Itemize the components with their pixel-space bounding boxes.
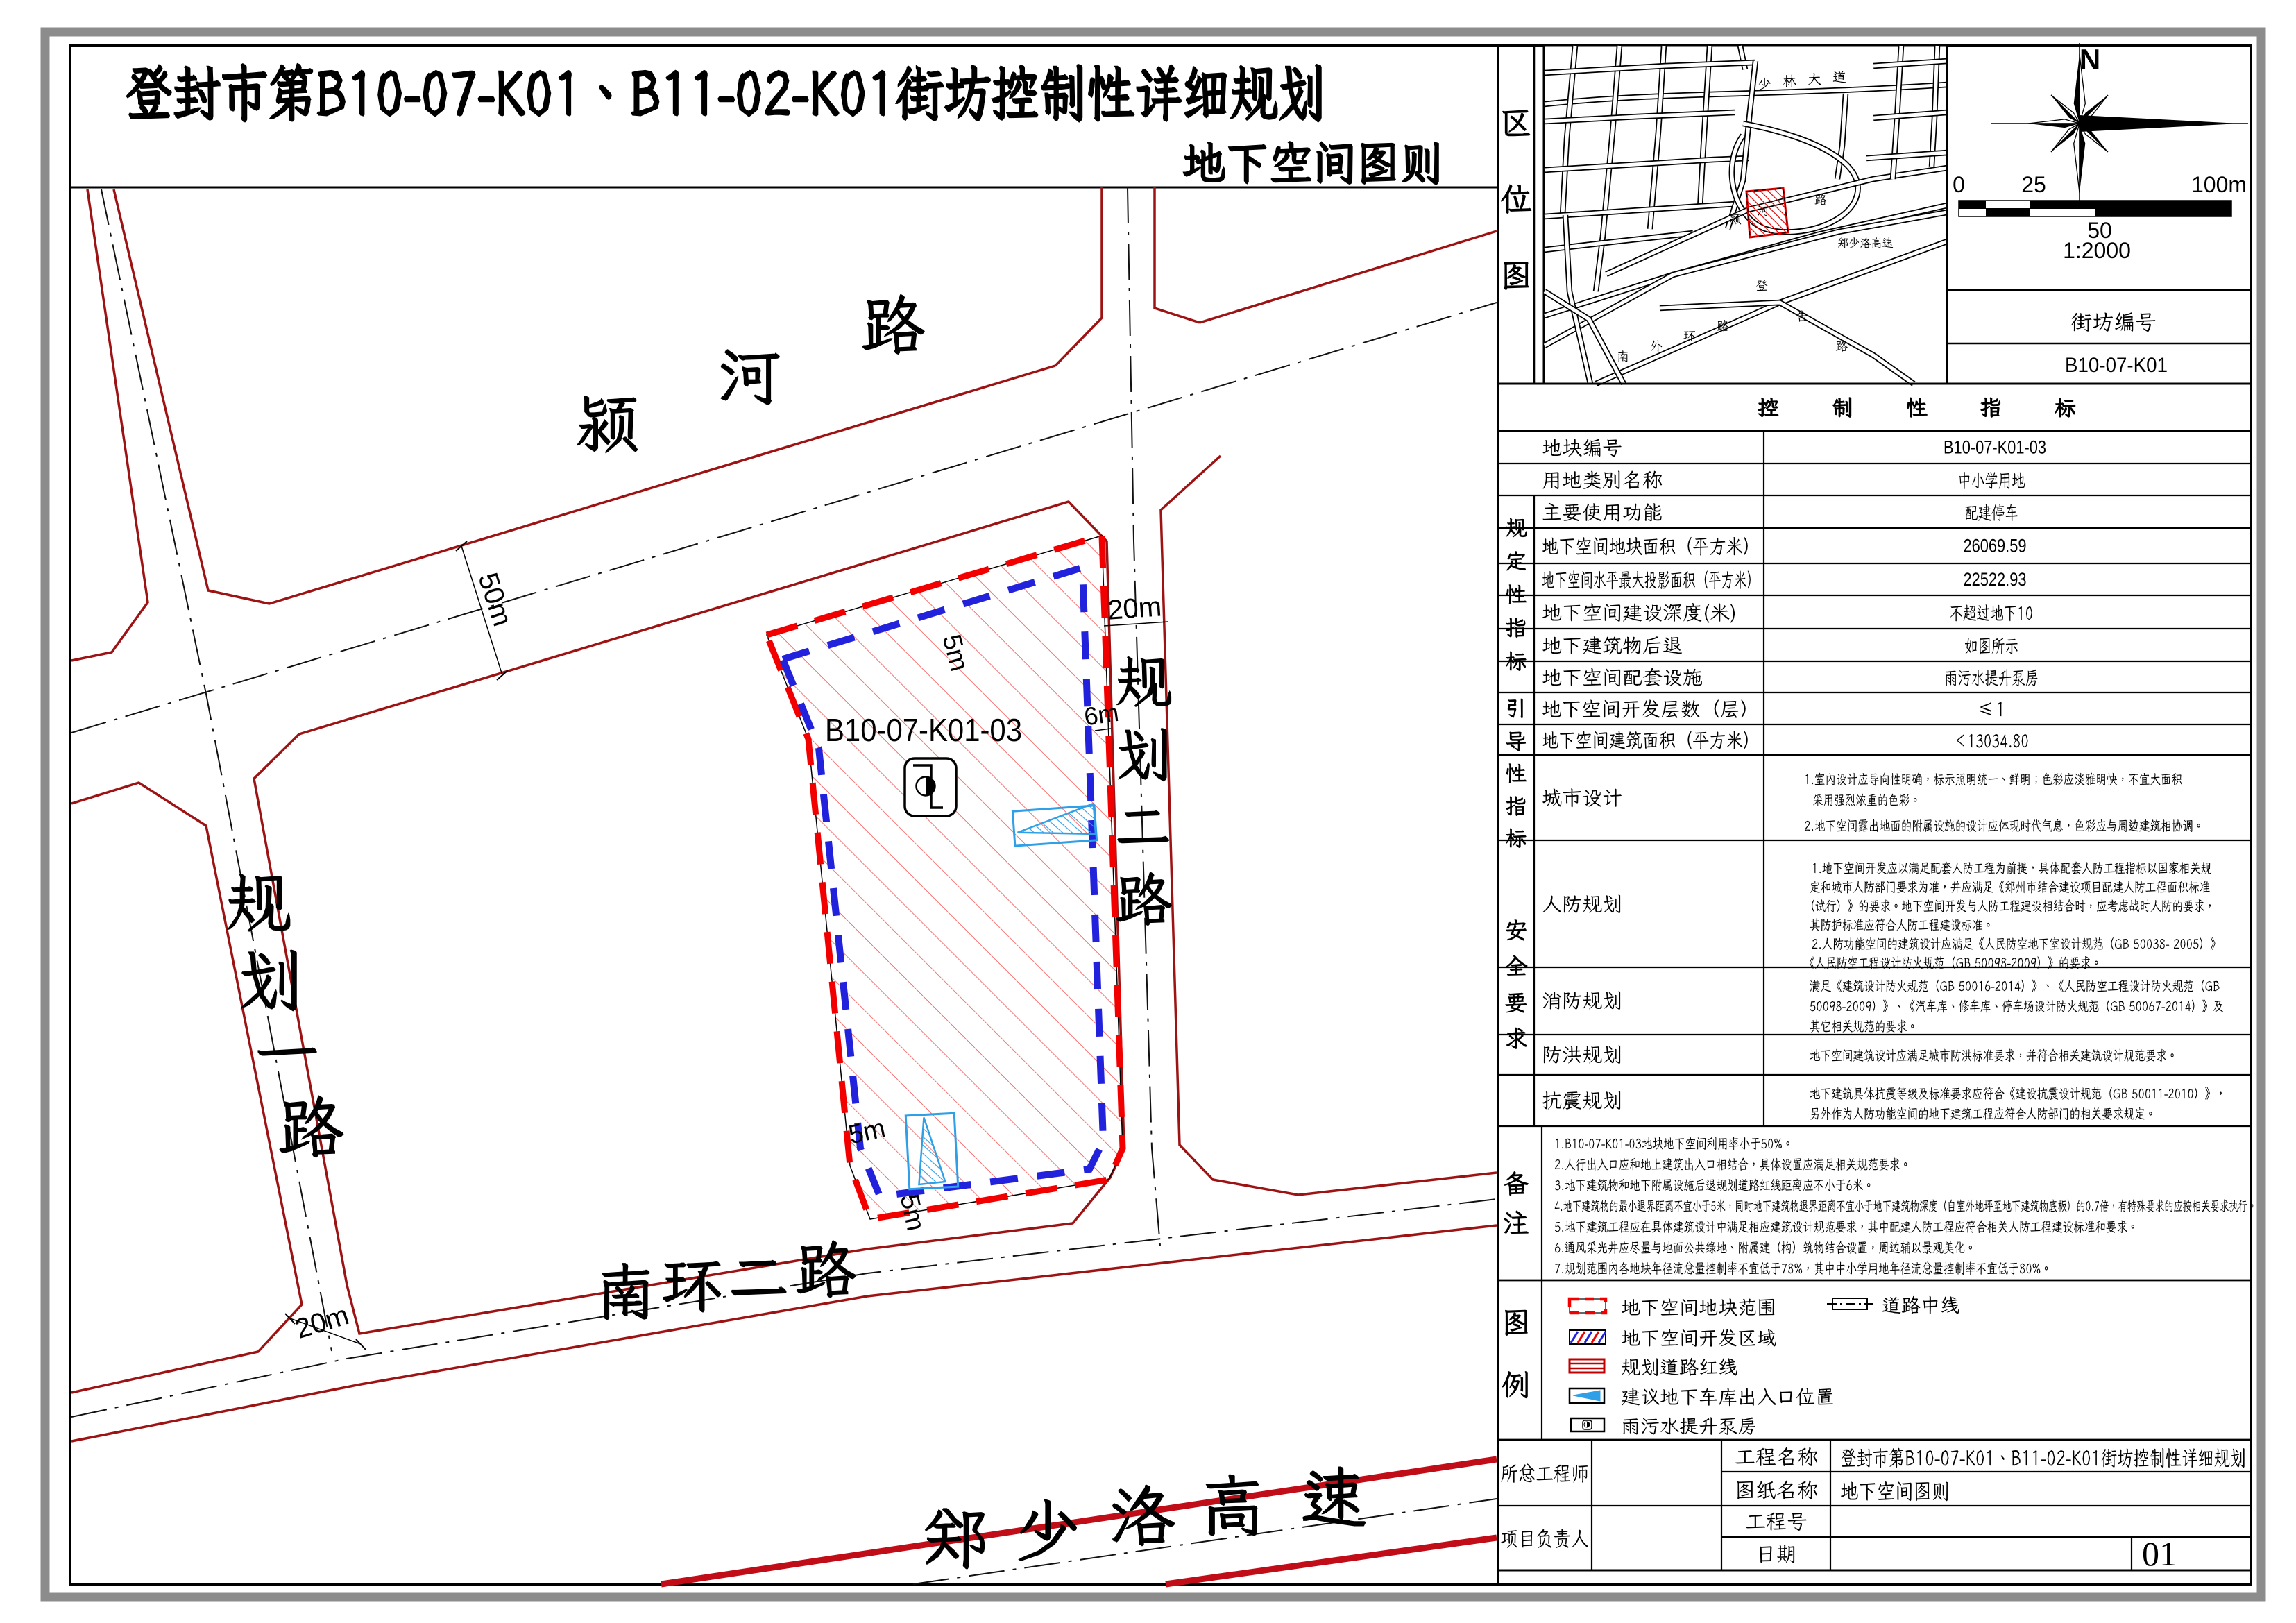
svg-text:22522.93: 22522.93	[1964, 569, 2027, 590]
svg-text:01: 01	[2142, 1534, 2177, 1573]
svg-text:B10-07-K01-03: B10-07-K01-03	[825, 712, 1022, 748]
svg-text:26069.59: 26069.59	[1964, 536, 2027, 556]
svg-text:0: 0	[1953, 172, 1965, 197]
svg-text:6m: 6m	[1082, 698, 1121, 731]
svg-text:20m: 20m	[1107, 591, 1163, 625]
svg-text:25: 25	[2021, 172, 2046, 197]
svg-text:1:2000: 1:2000	[2063, 238, 2131, 263]
svg-text:N: N	[2080, 43, 2100, 76]
svg-text:B10-07-K01: B10-07-K01	[2065, 354, 2168, 377]
svg-text:B10-07-K01-03: B10-07-K01-03	[1944, 437, 2046, 458]
svg-text:100m: 100m	[2191, 172, 2247, 197]
